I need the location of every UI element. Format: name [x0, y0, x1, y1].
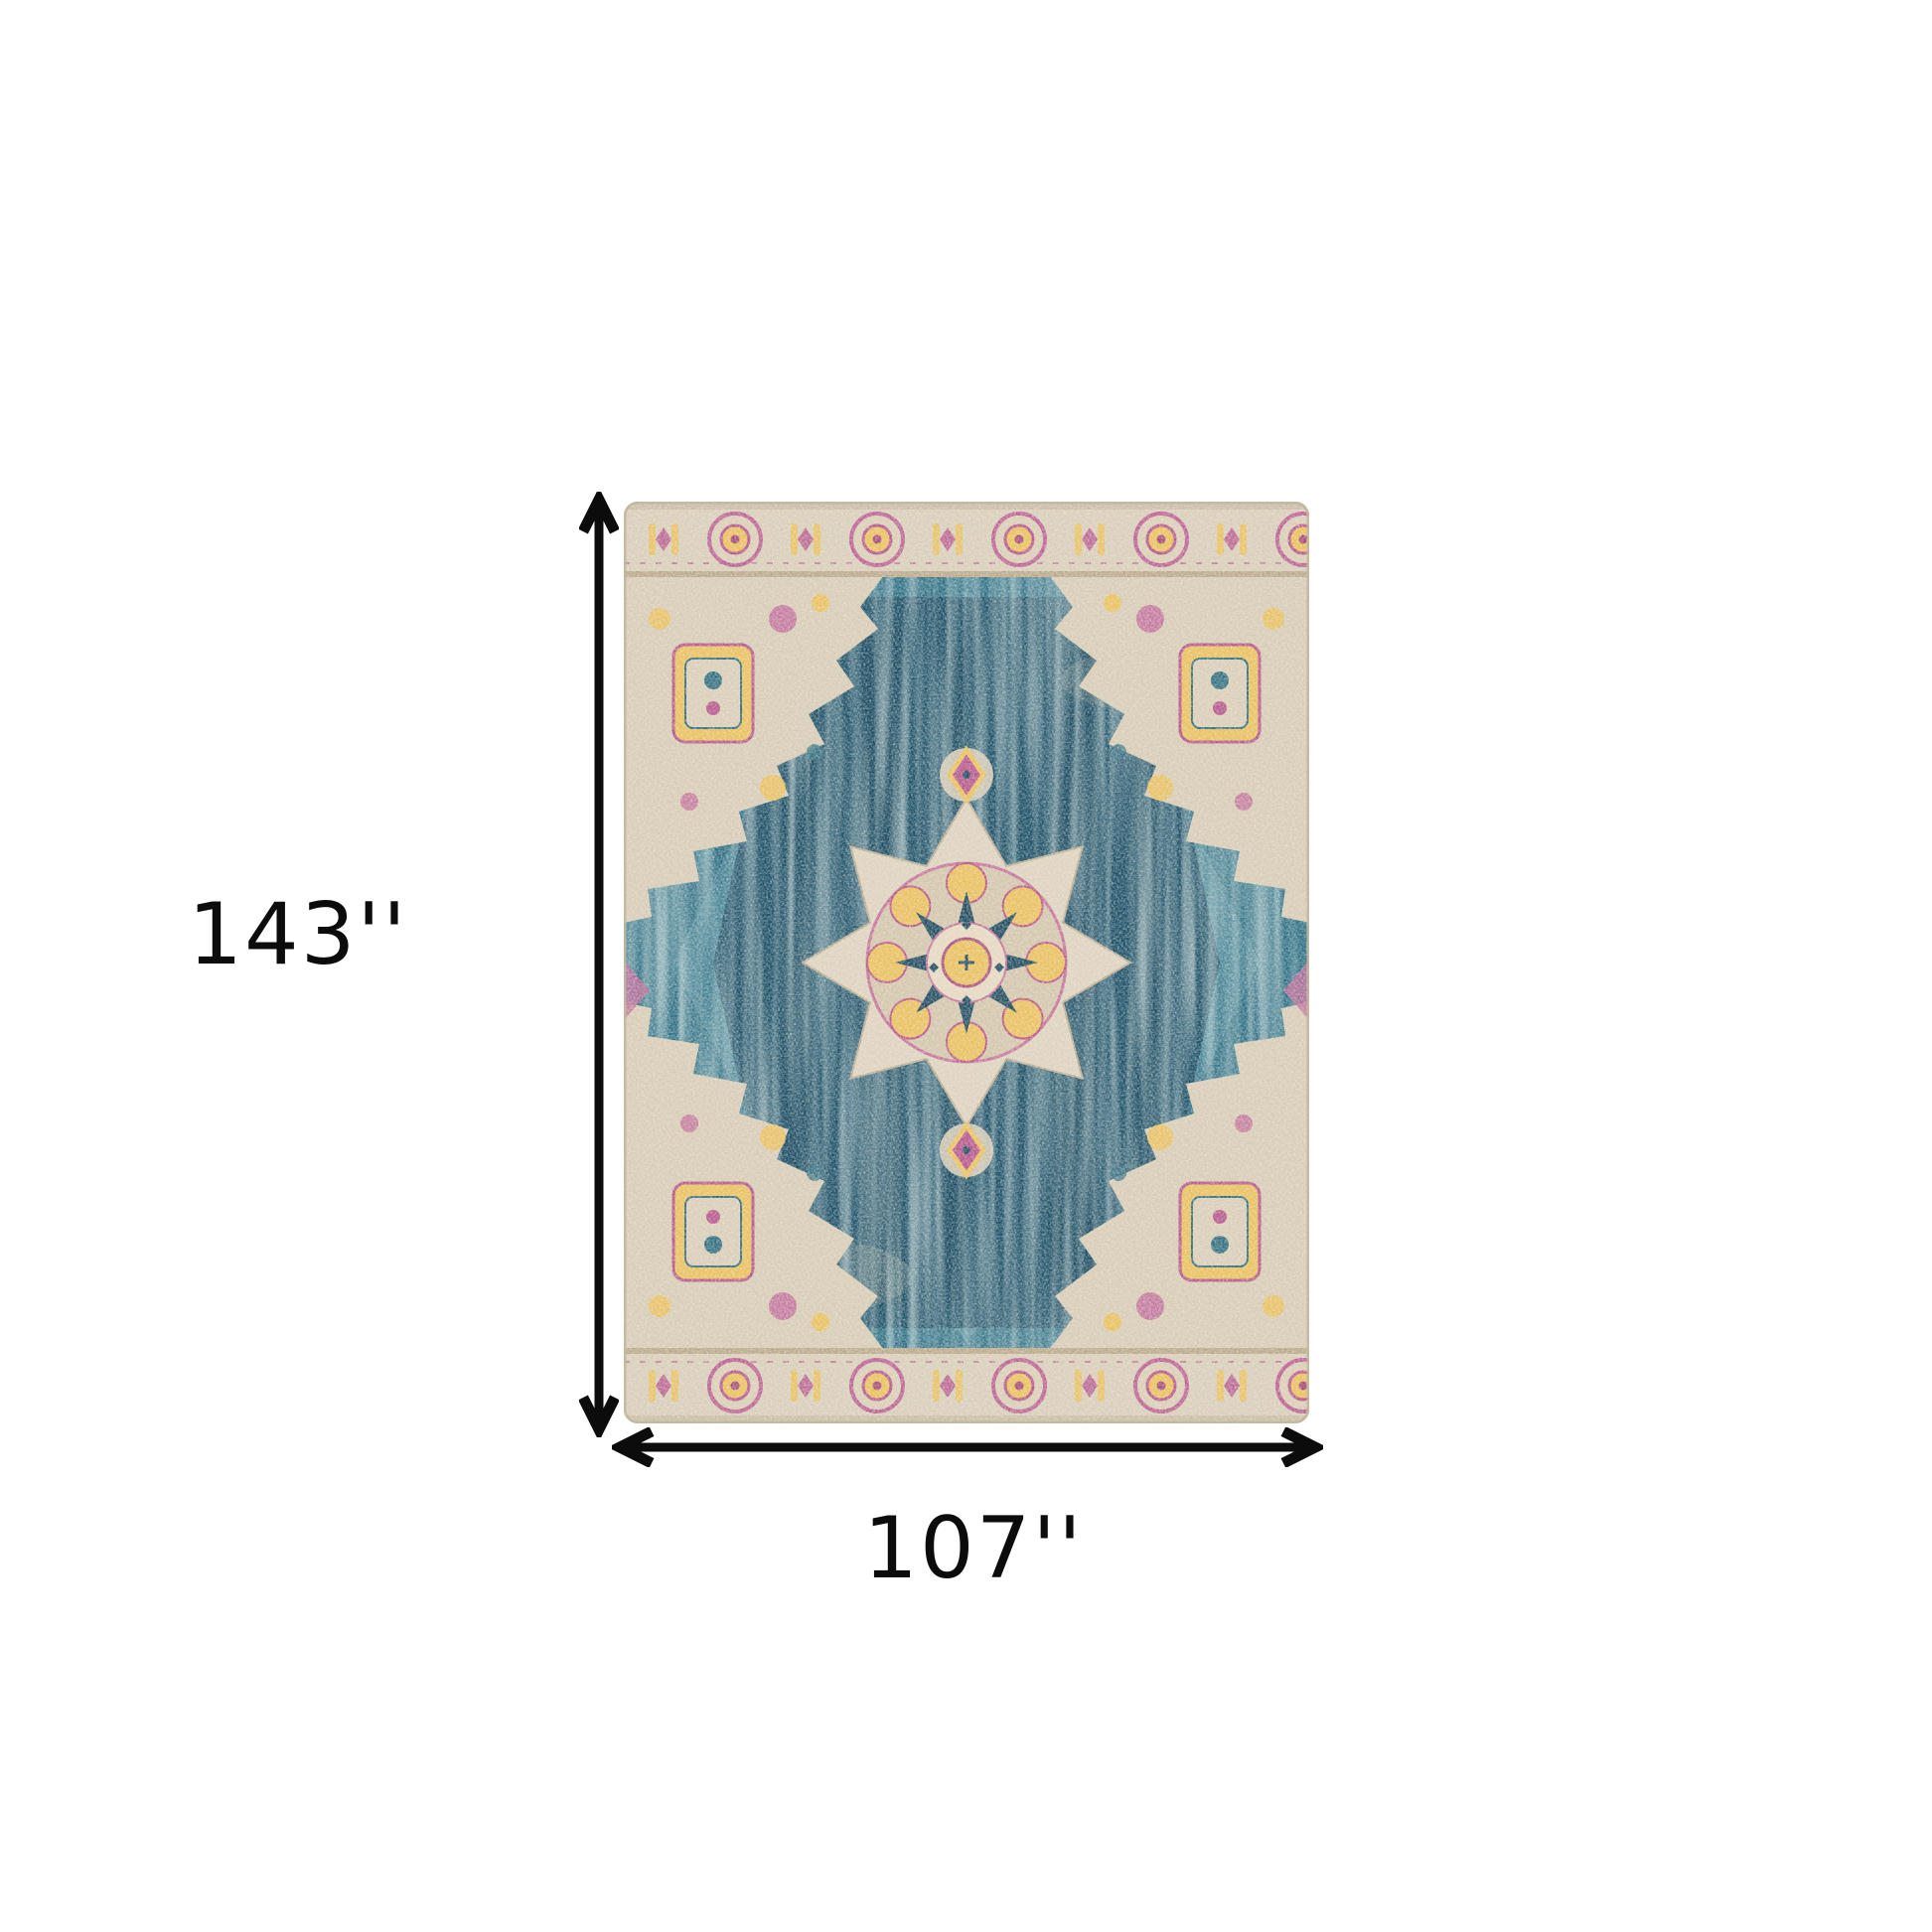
height-arrow-icon	[579, 492, 619, 1437]
height-dimension-label: 143''	[139, 892, 457, 977]
rug-illustration	[624, 502, 1309, 1423]
dimension-diagram: 143'' 107''	[0, 0, 1932, 1932]
rug-image	[624, 502, 1309, 1423]
width-arrow-icon	[612, 1427, 1323, 1467]
width-dimension-label: 107''	[815, 1506, 1132, 1591]
